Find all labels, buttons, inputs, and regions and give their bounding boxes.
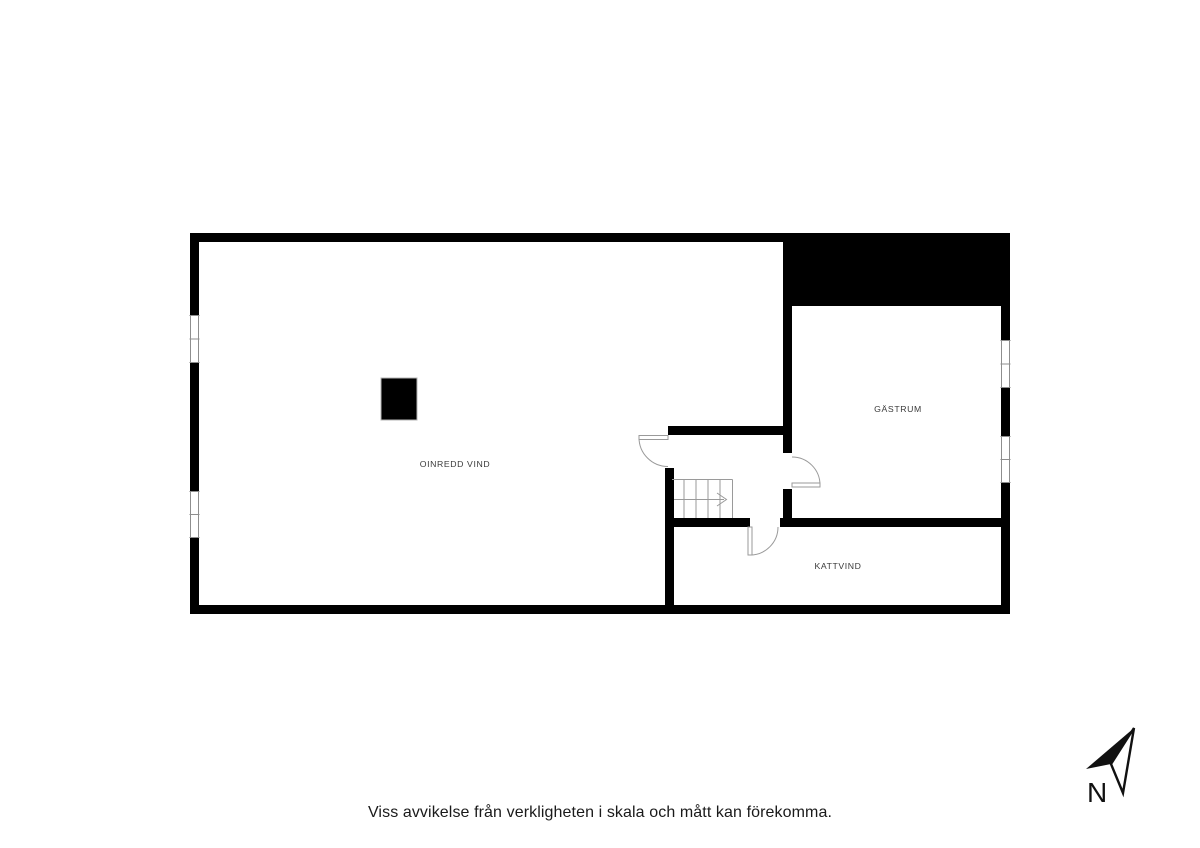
wall-kattvind-north-west bbox=[665, 518, 750, 527]
floor-plan-page: OINREDD VIND GÄSTRUM KATTVIND N Viss avv… bbox=[0, 0, 1200, 848]
north-arrow-open-half bbox=[1111, 728, 1134, 793]
window-left-upper bbox=[189, 315, 200, 363]
north-arrow-icon: N bbox=[1086, 728, 1134, 808]
wall-left-lower bbox=[190, 538, 199, 614]
wall-gastrum-west-upper bbox=[783, 306, 792, 453]
wall-kattvind-north-east bbox=[780, 518, 1001, 527]
roof-void bbox=[783, 233, 1010, 306]
floor-plan: OINREDD VIND GÄSTRUM KATTVIND N bbox=[0, 0, 1200, 848]
chimney bbox=[381, 378, 417, 420]
wall-right-lower bbox=[1001, 483, 1010, 614]
window-right-upper bbox=[1000, 340, 1011, 388]
wall-stairhall-north bbox=[668, 426, 783, 435]
room-label-kattvind: KATTVIND bbox=[814, 561, 861, 571]
windows bbox=[189, 315, 1011, 538]
wall-bottom bbox=[190, 605, 1010, 614]
window-right-lower bbox=[1000, 436, 1011, 483]
room-label-oinredd-vind: OINREDD VIND bbox=[420, 459, 490, 469]
disclaimer-text: Viss avvikelse från verkligheten i skala… bbox=[0, 804, 1200, 822]
wall-left-upper bbox=[190, 233, 199, 315]
wall-left-middle bbox=[190, 363, 199, 491]
staircase bbox=[672, 480, 733, 519]
door-gastrum bbox=[792, 457, 820, 487]
door-oinredd-vind bbox=[639, 436, 668, 467]
room-label-gastrum: GÄSTRUM bbox=[874, 404, 922, 414]
wall-right-middle bbox=[1001, 388, 1010, 436]
window-left-lower bbox=[189, 491, 200, 538]
wall-stairhall-west bbox=[665, 468, 674, 605]
door-kattvind bbox=[748, 527, 778, 555]
